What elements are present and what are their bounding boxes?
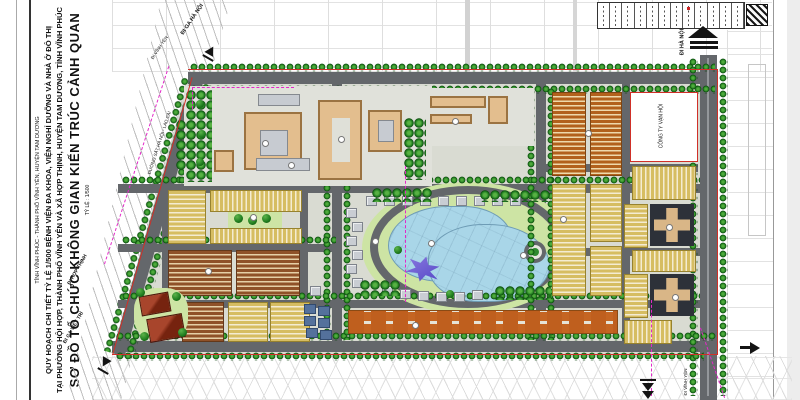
rowhouse-block-yellow bbox=[552, 184, 586, 296]
lot-badge bbox=[250, 214, 257, 221]
rowhouse-block-brown bbox=[236, 250, 300, 296]
header-cell-marked bbox=[683, 3, 695, 28]
rowhouse-block-yellow bbox=[632, 250, 696, 272]
rowhouse-block-yellow bbox=[210, 228, 302, 244]
header-cell bbox=[647, 3, 659, 28]
rowhouse-block-brown bbox=[168, 250, 232, 296]
hospital-east-building bbox=[368, 110, 402, 152]
arrow-north-bar bbox=[690, 46, 718, 49]
villa-blue bbox=[320, 330, 332, 340]
project-line-1: QUY HOẠCH CHI TIẾT TỶ LỆ 1/500 BỆNH VIỆN… bbox=[44, 26, 53, 374]
lot-badge bbox=[338, 136, 345, 143]
villa-blue bbox=[318, 306, 330, 316]
tree bbox=[446, 290, 454, 298]
arrow-east-icon bbox=[750, 342, 760, 354]
rowhouse-block-yellow bbox=[624, 204, 648, 248]
hospital-garden-east bbox=[404, 118, 426, 180]
villa bbox=[472, 290, 483, 300]
sheet-frame-line-right bbox=[773, 0, 774, 400]
sheet-frame-line-outer bbox=[16, 0, 17, 400]
grove bbox=[176, 120, 196, 170]
tree bbox=[198, 130, 206, 138]
resort-building-3 bbox=[488, 96, 508, 124]
rowhouse-block-yellow bbox=[228, 302, 268, 342]
villa-blue bbox=[304, 316, 316, 326]
rowhouse-block-yellow bbox=[168, 190, 206, 244]
header-cell bbox=[695, 3, 707, 28]
villa bbox=[352, 250, 363, 260]
rowhouse-block-yellow bbox=[624, 274, 648, 318]
arrow-south-icon bbox=[642, 383, 654, 391]
project-line-2: TẠI PHƯỜNG HỘI HỢP, THÀNH PHỐ VĨNH YÊN V… bbox=[55, 7, 64, 393]
header-cell bbox=[610, 3, 622, 28]
lot-badge bbox=[520, 252, 527, 259]
label-road-to-hanoi: ĐI HÀ NỘI bbox=[680, 29, 686, 55]
tree bbox=[172, 292, 181, 301]
villa bbox=[454, 292, 465, 302]
grove bbox=[372, 188, 432, 202]
hospital-building-north bbox=[258, 94, 300, 106]
bungalow-row-block bbox=[348, 310, 618, 334]
lot-badge bbox=[666, 224, 673, 231]
resort-building-1 bbox=[430, 96, 486, 108]
master-plan-sheet: TỈNH VĨNH PHÚC - THÀNH PHỐ VĨNH YÊN, HUY… bbox=[0, 0, 800, 400]
grove bbox=[360, 280, 400, 296]
header-cell bbox=[659, 3, 671, 28]
lot-badge bbox=[560, 216, 567, 223]
rowhouse-block-orange bbox=[552, 92, 586, 176]
tree bbox=[234, 214, 243, 223]
header-cell bbox=[720, 3, 732, 28]
boundary-magenta-top bbox=[192, 87, 294, 88]
label-company-parcel: CÔNG TY VẠN HỘI bbox=[660, 104, 665, 149]
grove bbox=[480, 190, 550, 202]
villa-blue bbox=[304, 304, 316, 314]
sheet-header-strip bbox=[597, 2, 745, 29]
region-line: TỈNH VĨNH PHÚC - THÀNH PHỐ VĨNH YÊN, HUY… bbox=[35, 116, 41, 283]
header-cell bbox=[732, 3, 744, 28]
boundary-red-south bbox=[112, 354, 718, 355]
header-cell bbox=[708, 3, 720, 28]
grove bbox=[495, 286, 551, 300]
rowhouse-block-brown bbox=[182, 302, 224, 342]
villa bbox=[352, 222, 363, 232]
lot-badge bbox=[428, 240, 435, 247]
tree-row bbox=[190, 63, 715, 72]
boundary-magenta-step bbox=[192, 87, 193, 109]
lot-badge bbox=[452, 118, 459, 125]
villa bbox=[418, 291, 429, 301]
arrow-east-bar bbox=[740, 346, 750, 349]
lot-badge bbox=[412, 322, 419, 329]
context-building-right bbox=[748, 64, 766, 236]
header-cell bbox=[671, 3, 683, 28]
rowhouse-block-yellow bbox=[624, 320, 672, 344]
tree bbox=[196, 158, 204, 166]
resort-building-2 bbox=[430, 114, 472, 124]
villa bbox=[438, 196, 449, 206]
boundary-red-east bbox=[717, 69, 718, 355]
tree bbox=[196, 100, 204, 108]
boundary-red-north bbox=[188, 69, 718, 70]
arrow-south-icon bbox=[642, 391, 654, 399]
villa bbox=[310, 286, 321, 296]
context-road-top-2 bbox=[573, 0, 577, 72]
tree bbox=[178, 328, 187, 337]
label-road-to-vinh-yen: ĐI VĨNH YÊN bbox=[684, 369, 689, 396]
drawing-scale: TỶ LỆ : 1/500 bbox=[85, 185, 91, 216]
lot-badge bbox=[372, 238, 379, 245]
header-cell bbox=[622, 3, 634, 28]
lot-badge bbox=[585, 130, 592, 137]
arrow-north-bar bbox=[690, 41, 718, 44]
context-road-top-1 bbox=[465, 0, 470, 72]
lot-badge bbox=[262, 140, 269, 147]
rowhouse-block-orange bbox=[590, 92, 622, 176]
lot-badge bbox=[288, 162, 295, 169]
hospital-small-building bbox=[214, 150, 234, 172]
villa-blue bbox=[306, 328, 318, 338]
rowhouse-block-yellow bbox=[210, 190, 302, 212]
arrow-south-bar bbox=[640, 379, 656, 381]
north-arrow-icon bbox=[746, 4, 768, 26]
villa bbox=[346, 208, 357, 218]
header-cell bbox=[598, 3, 610, 28]
villa bbox=[346, 264, 357, 274]
rowhouse-block-yellow bbox=[632, 166, 696, 200]
arrow-north-icon bbox=[688, 26, 718, 38]
hospital-east-core bbox=[378, 120, 394, 142]
tree bbox=[140, 332, 149, 341]
hospital-south-slab bbox=[256, 158, 310, 171]
boundary-magenta-southeast bbox=[651, 300, 652, 396]
villa bbox=[346, 236, 357, 246]
tree bbox=[262, 214, 271, 223]
tree bbox=[394, 246, 402, 254]
road-north-boundary bbox=[188, 72, 718, 84]
header-cell bbox=[635, 3, 647, 28]
sheet-edge-band bbox=[787, 0, 800, 400]
villa-blue bbox=[318, 318, 330, 328]
lot-badge bbox=[672, 294, 679, 301]
boundary-magenta-center bbox=[405, 166, 406, 302]
tree-row bbox=[719, 58, 728, 396]
rowhouse-block-yellow bbox=[590, 184, 622, 242]
lot-badge bbox=[205, 268, 212, 275]
villa bbox=[456, 196, 467, 206]
tree bbox=[136, 288, 145, 297]
rowhouse-block-yellow bbox=[590, 246, 622, 296]
